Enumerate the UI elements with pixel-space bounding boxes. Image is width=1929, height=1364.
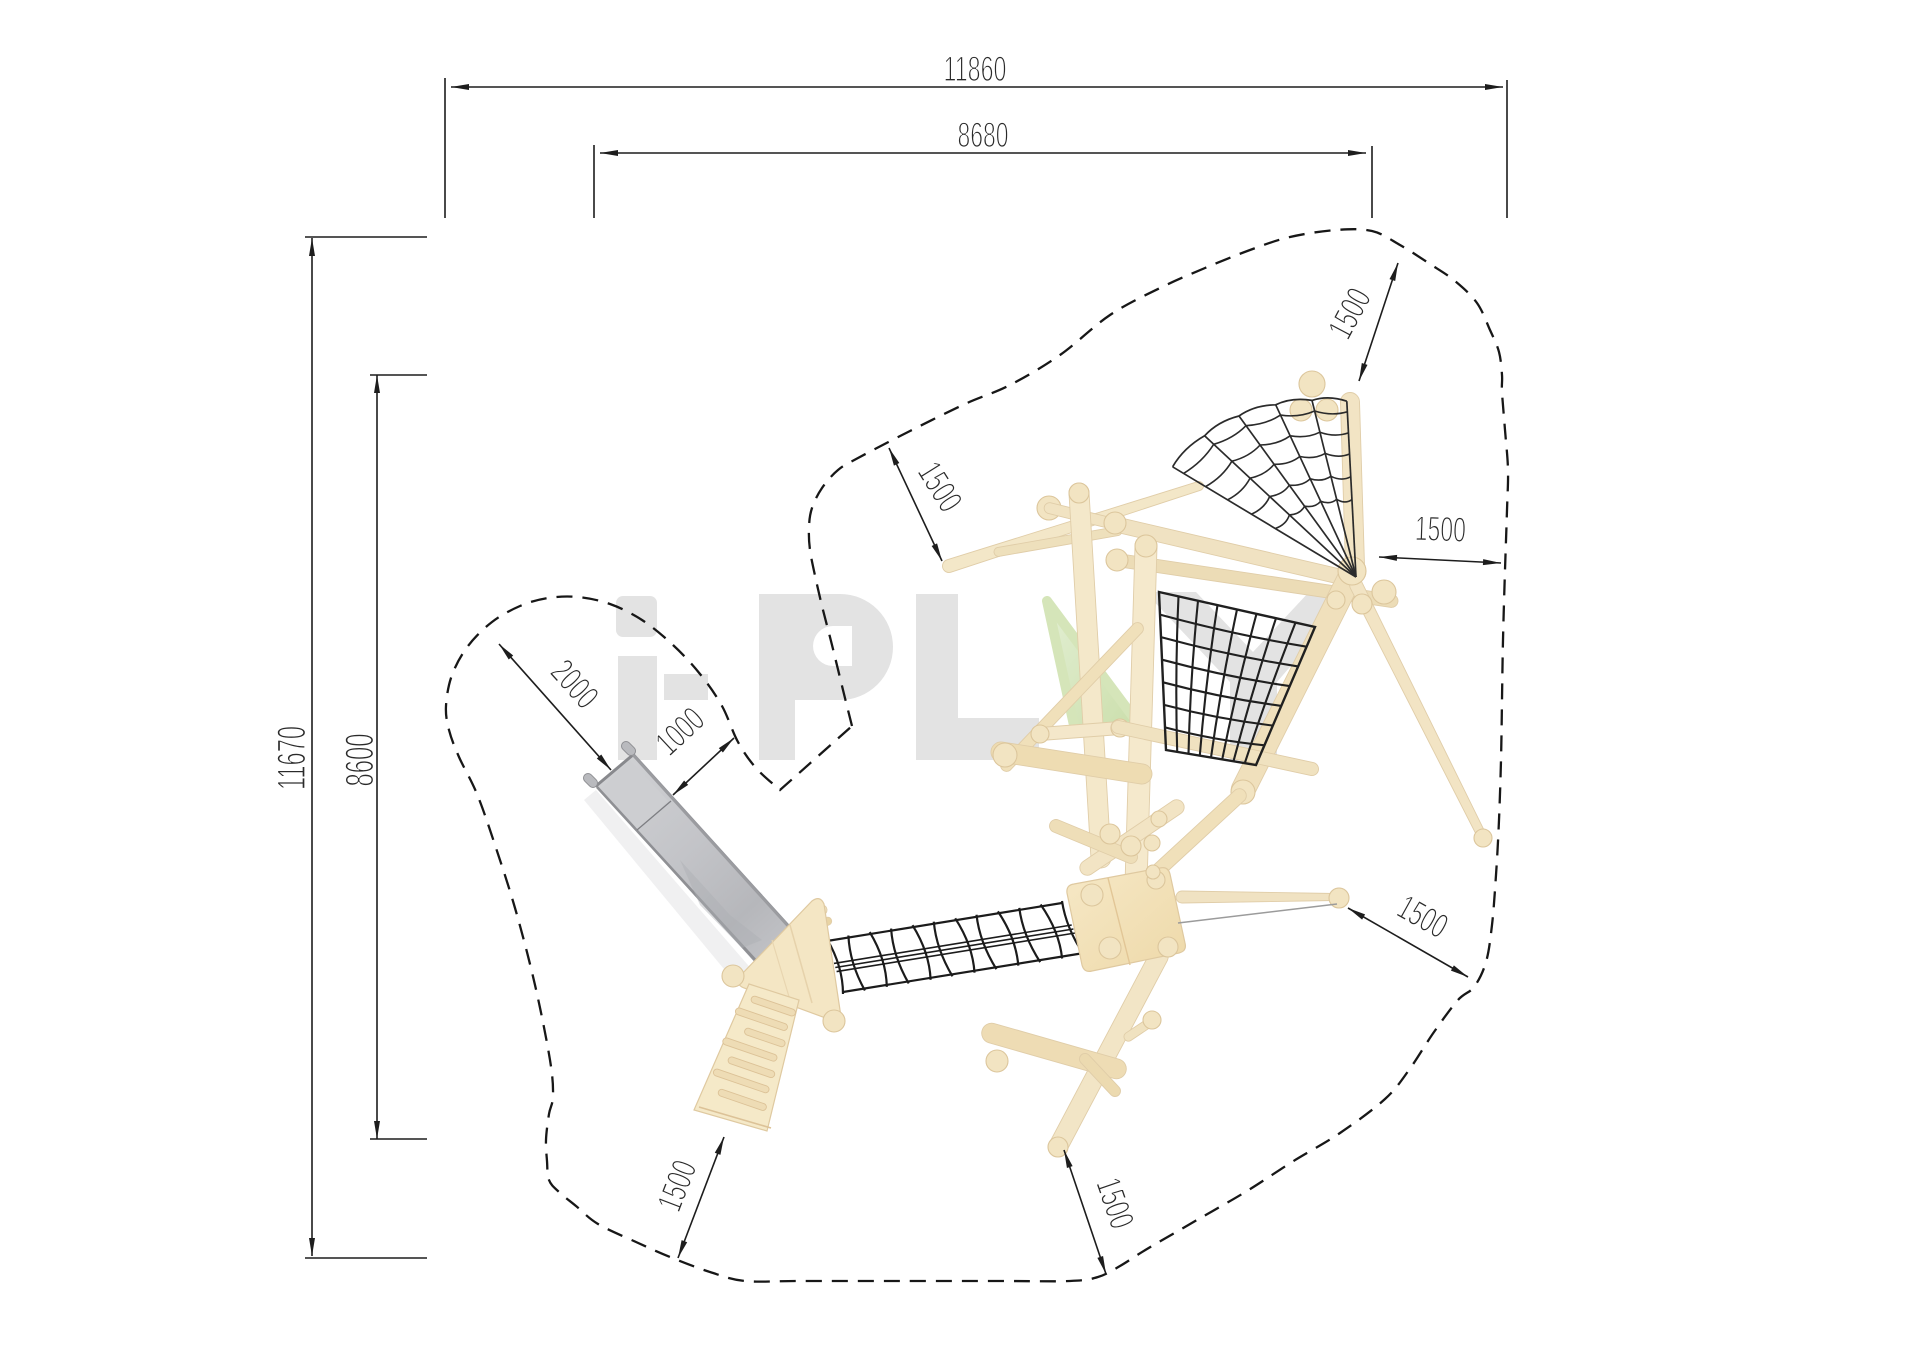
svg-text:1500: 1500 bbox=[1414, 509, 1466, 550]
svg-text:8600: 8600 bbox=[338, 734, 382, 787]
svg-text:8680: 8680 bbox=[958, 116, 1009, 155]
svg-text:11670: 11670 bbox=[270, 726, 314, 790]
svg-text:11860: 11860 bbox=[944, 50, 1007, 89]
